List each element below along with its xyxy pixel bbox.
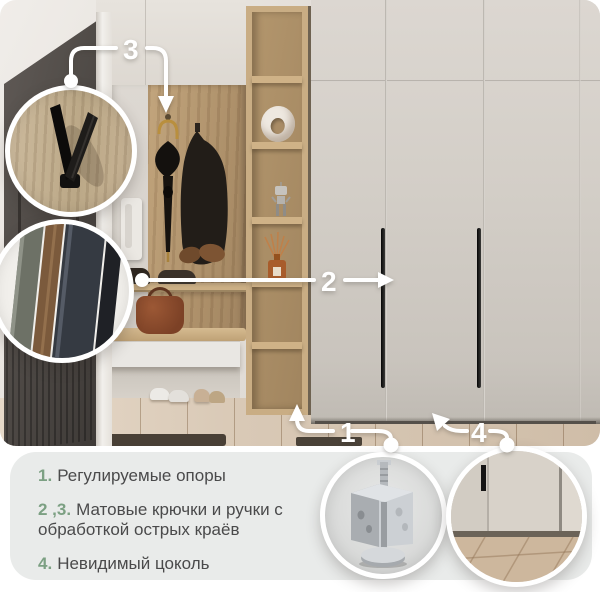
wardrobe-handle — [477, 228, 481, 388]
robot-figurine — [268, 182, 294, 218]
heels — [209, 391, 225, 403]
shelf-divider — [252, 217, 302, 224]
door-seam — [483, 0, 485, 424]
features-list: 1.Регулируемые опоры 2 ,3.Матовые крючки… — [10, 452, 310, 575]
sneakers — [169, 390, 189, 402]
feature-text: Матовые крючки и ручки с обработкой остр… — [38, 500, 283, 540]
feature-number: 1. — [38, 466, 52, 485]
reed-diffuser — [262, 232, 292, 282]
adjustable-foot-closeup-icon — [320, 452, 447, 579]
shelf-divider — [252, 142, 302, 149]
cabinet-seam — [145, 0, 146, 85]
upper-cabinet — [96, 0, 246, 88]
doormat — [296, 437, 362, 446]
bench-drawer — [96, 341, 240, 367]
product-infographic: 1.Регулируемые опоры 2 ,3.Матовые крючки… — [0, 0, 600, 592]
door-seam — [579, 0, 581, 424]
hallway-photo — [0, 0, 600, 446]
recessed-plinth — [315, 421, 596, 424]
umbrella-and-coat — [140, 95, 250, 285]
intercom — [121, 198, 142, 260]
wall-hook-closeup-icon — [5, 85, 137, 217]
shelf-divider — [252, 76, 302, 83]
shelf-divider — [252, 342, 302, 349]
leather-bag — [136, 296, 184, 334]
door-seam — [311, 80, 600, 82]
feature-text: Регулируемые опоры — [57, 466, 226, 485]
feature-item: 1.Регулируемые опоры — [38, 466, 310, 487]
wardrobe — [311, 0, 600, 424]
feature-text: Невидимый цоколь — [57, 554, 209, 573]
feature-item: 4.Невидимый цоколь — [38, 554, 310, 575]
recessed-plinth-closeup-icon — [446, 446, 587, 587]
door-seam — [385, 0, 387, 424]
feature-number: 4. — [38, 554, 52, 573]
feature-number: 2 ,3. — [38, 500, 71, 519]
sneakers — [150, 388, 170, 400]
wardrobe-handle — [381, 228, 385, 388]
feature-item: 2 ,3.Матовые крючки и ручки с обработкой… — [38, 500, 310, 541]
heels — [194, 389, 210, 402]
